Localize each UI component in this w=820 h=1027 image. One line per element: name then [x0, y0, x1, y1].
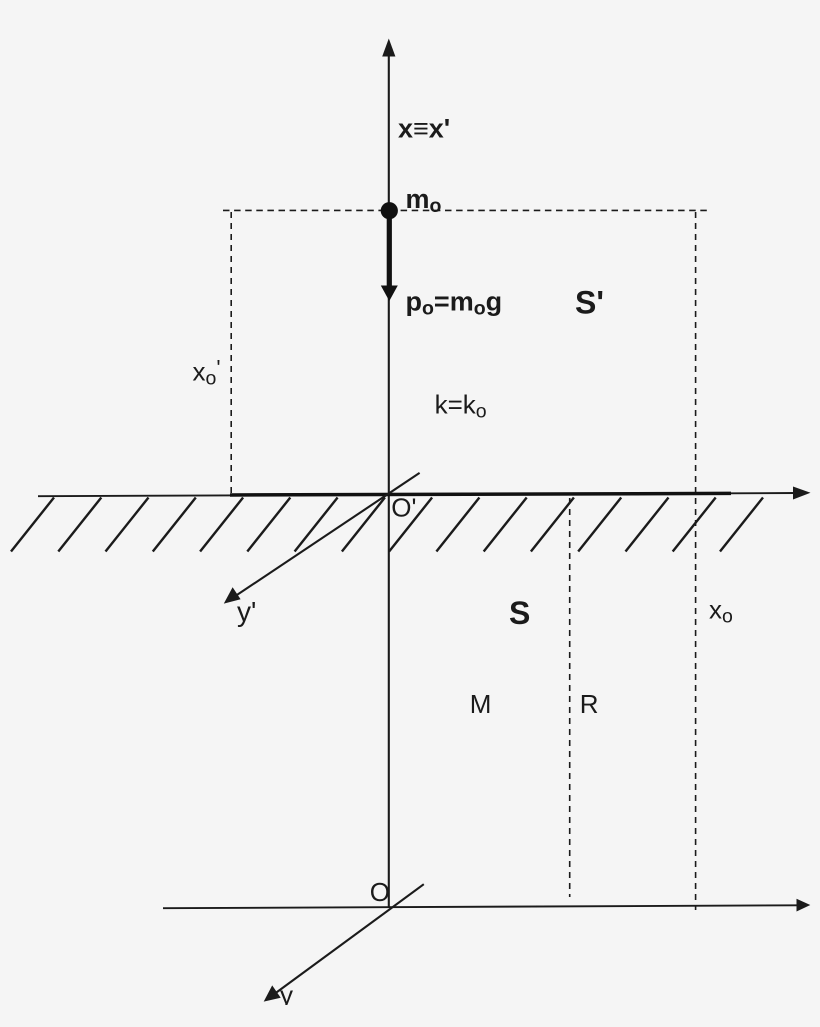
- svg-text:S: S: [509, 595, 530, 631]
- svg-text:R: R: [580, 689, 599, 719]
- svg-text:M: M: [470, 689, 492, 719]
- svg-text:x≡x': x≡x': [398, 114, 450, 144]
- svg-text:po=mog: po=mog: [406, 287, 503, 320]
- svg-text:S': S': [575, 285, 604, 321]
- svg-text:y': y': [237, 596, 256, 627]
- svg-text:O': O': [391, 493, 416, 523]
- svg-text:O: O: [370, 877, 390, 907]
